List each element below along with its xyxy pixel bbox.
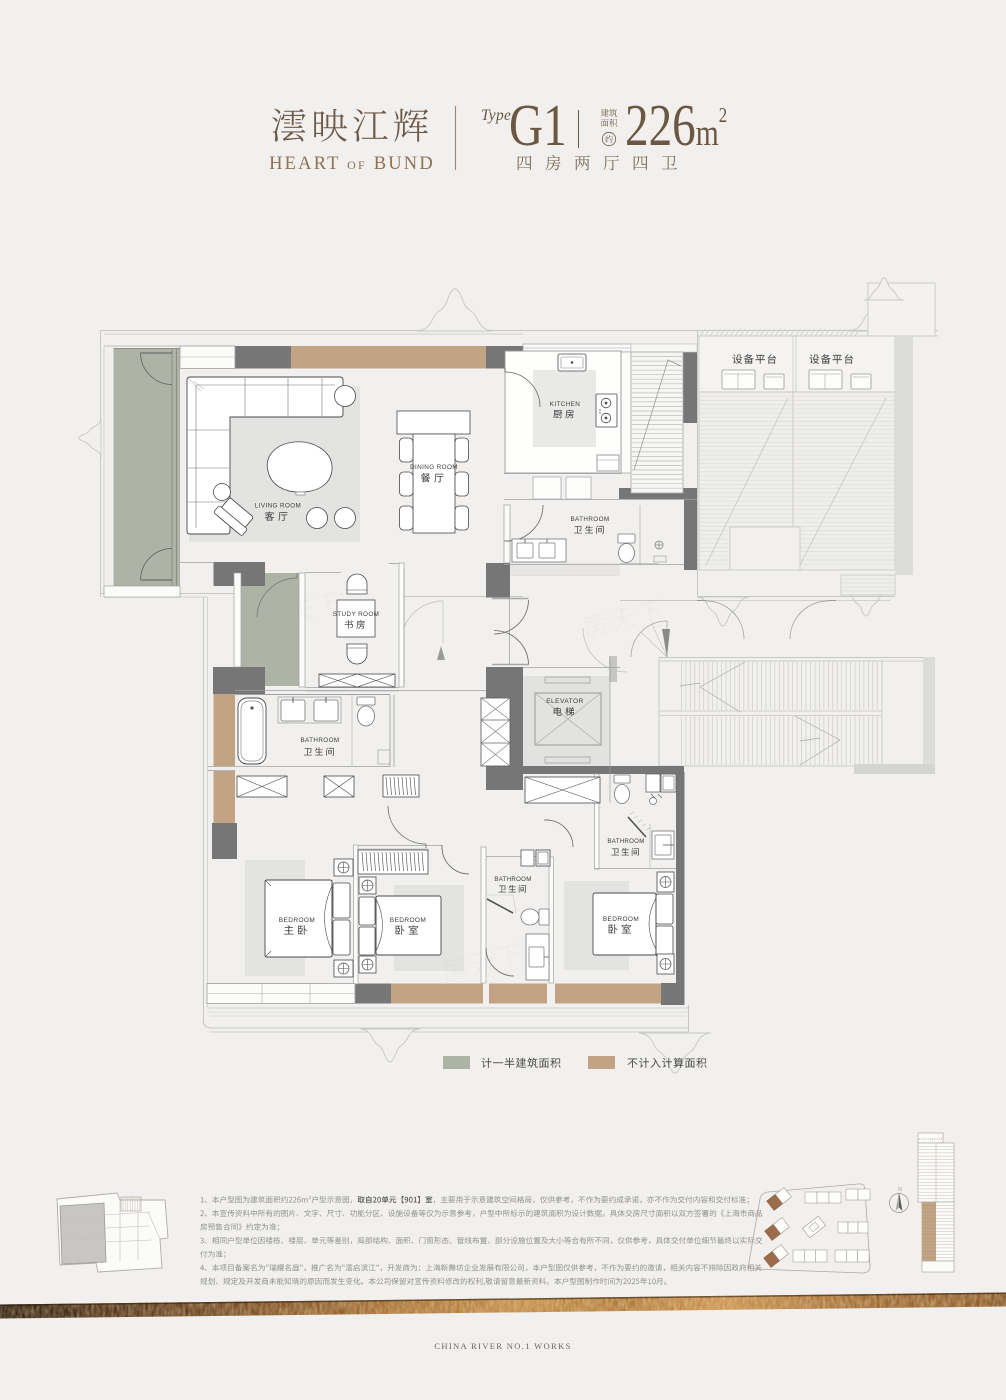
svg-text:BATHROOM: BATHROOM: [607, 838, 644, 845]
svg-text:ELEVATOR: ELEVATOR: [546, 698, 584, 705]
svg-text:BATHROOM: BATHROOM: [570, 516, 609, 523]
svg-text:KITCHEN: KITCHEN: [550, 401, 580, 408]
svg-text:Type: Type: [481, 107, 511, 124]
svg-text:BEDROOM: BEDROOM: [279, 917, 315, 924]
svg-text:CHINA RIVER NO.1 WORKS: CHINA RIVER NO.1 WORKS: [434, 1341, 571, 1351]
svg-text:BEDROOM: BEDROOM: [603, 916, 639, 923]
svg-text:N: N: [898, 1187, 902, 1193]
svg-text:BEDROOM: BEDROOM: [390, 917, 426, 924]
svg-text:DINING ROOM: DINING ROOM: [410, 464, 458, 471]
svg-text:BATHROOM: BATHROOM: [300, 737, 339, 744]
svg-text:LIVING ROOM: LIVING ROOM: [255, 503, 301, 510]
svg-text:STUDY ROOM: STUDY ROOM: [333, 611, 380, 618]
svg-text:G1: G1: [509, 92, 567, 158]
svg-text:BATHROOM: BATHROOM: [494, 876, 531, 883]
